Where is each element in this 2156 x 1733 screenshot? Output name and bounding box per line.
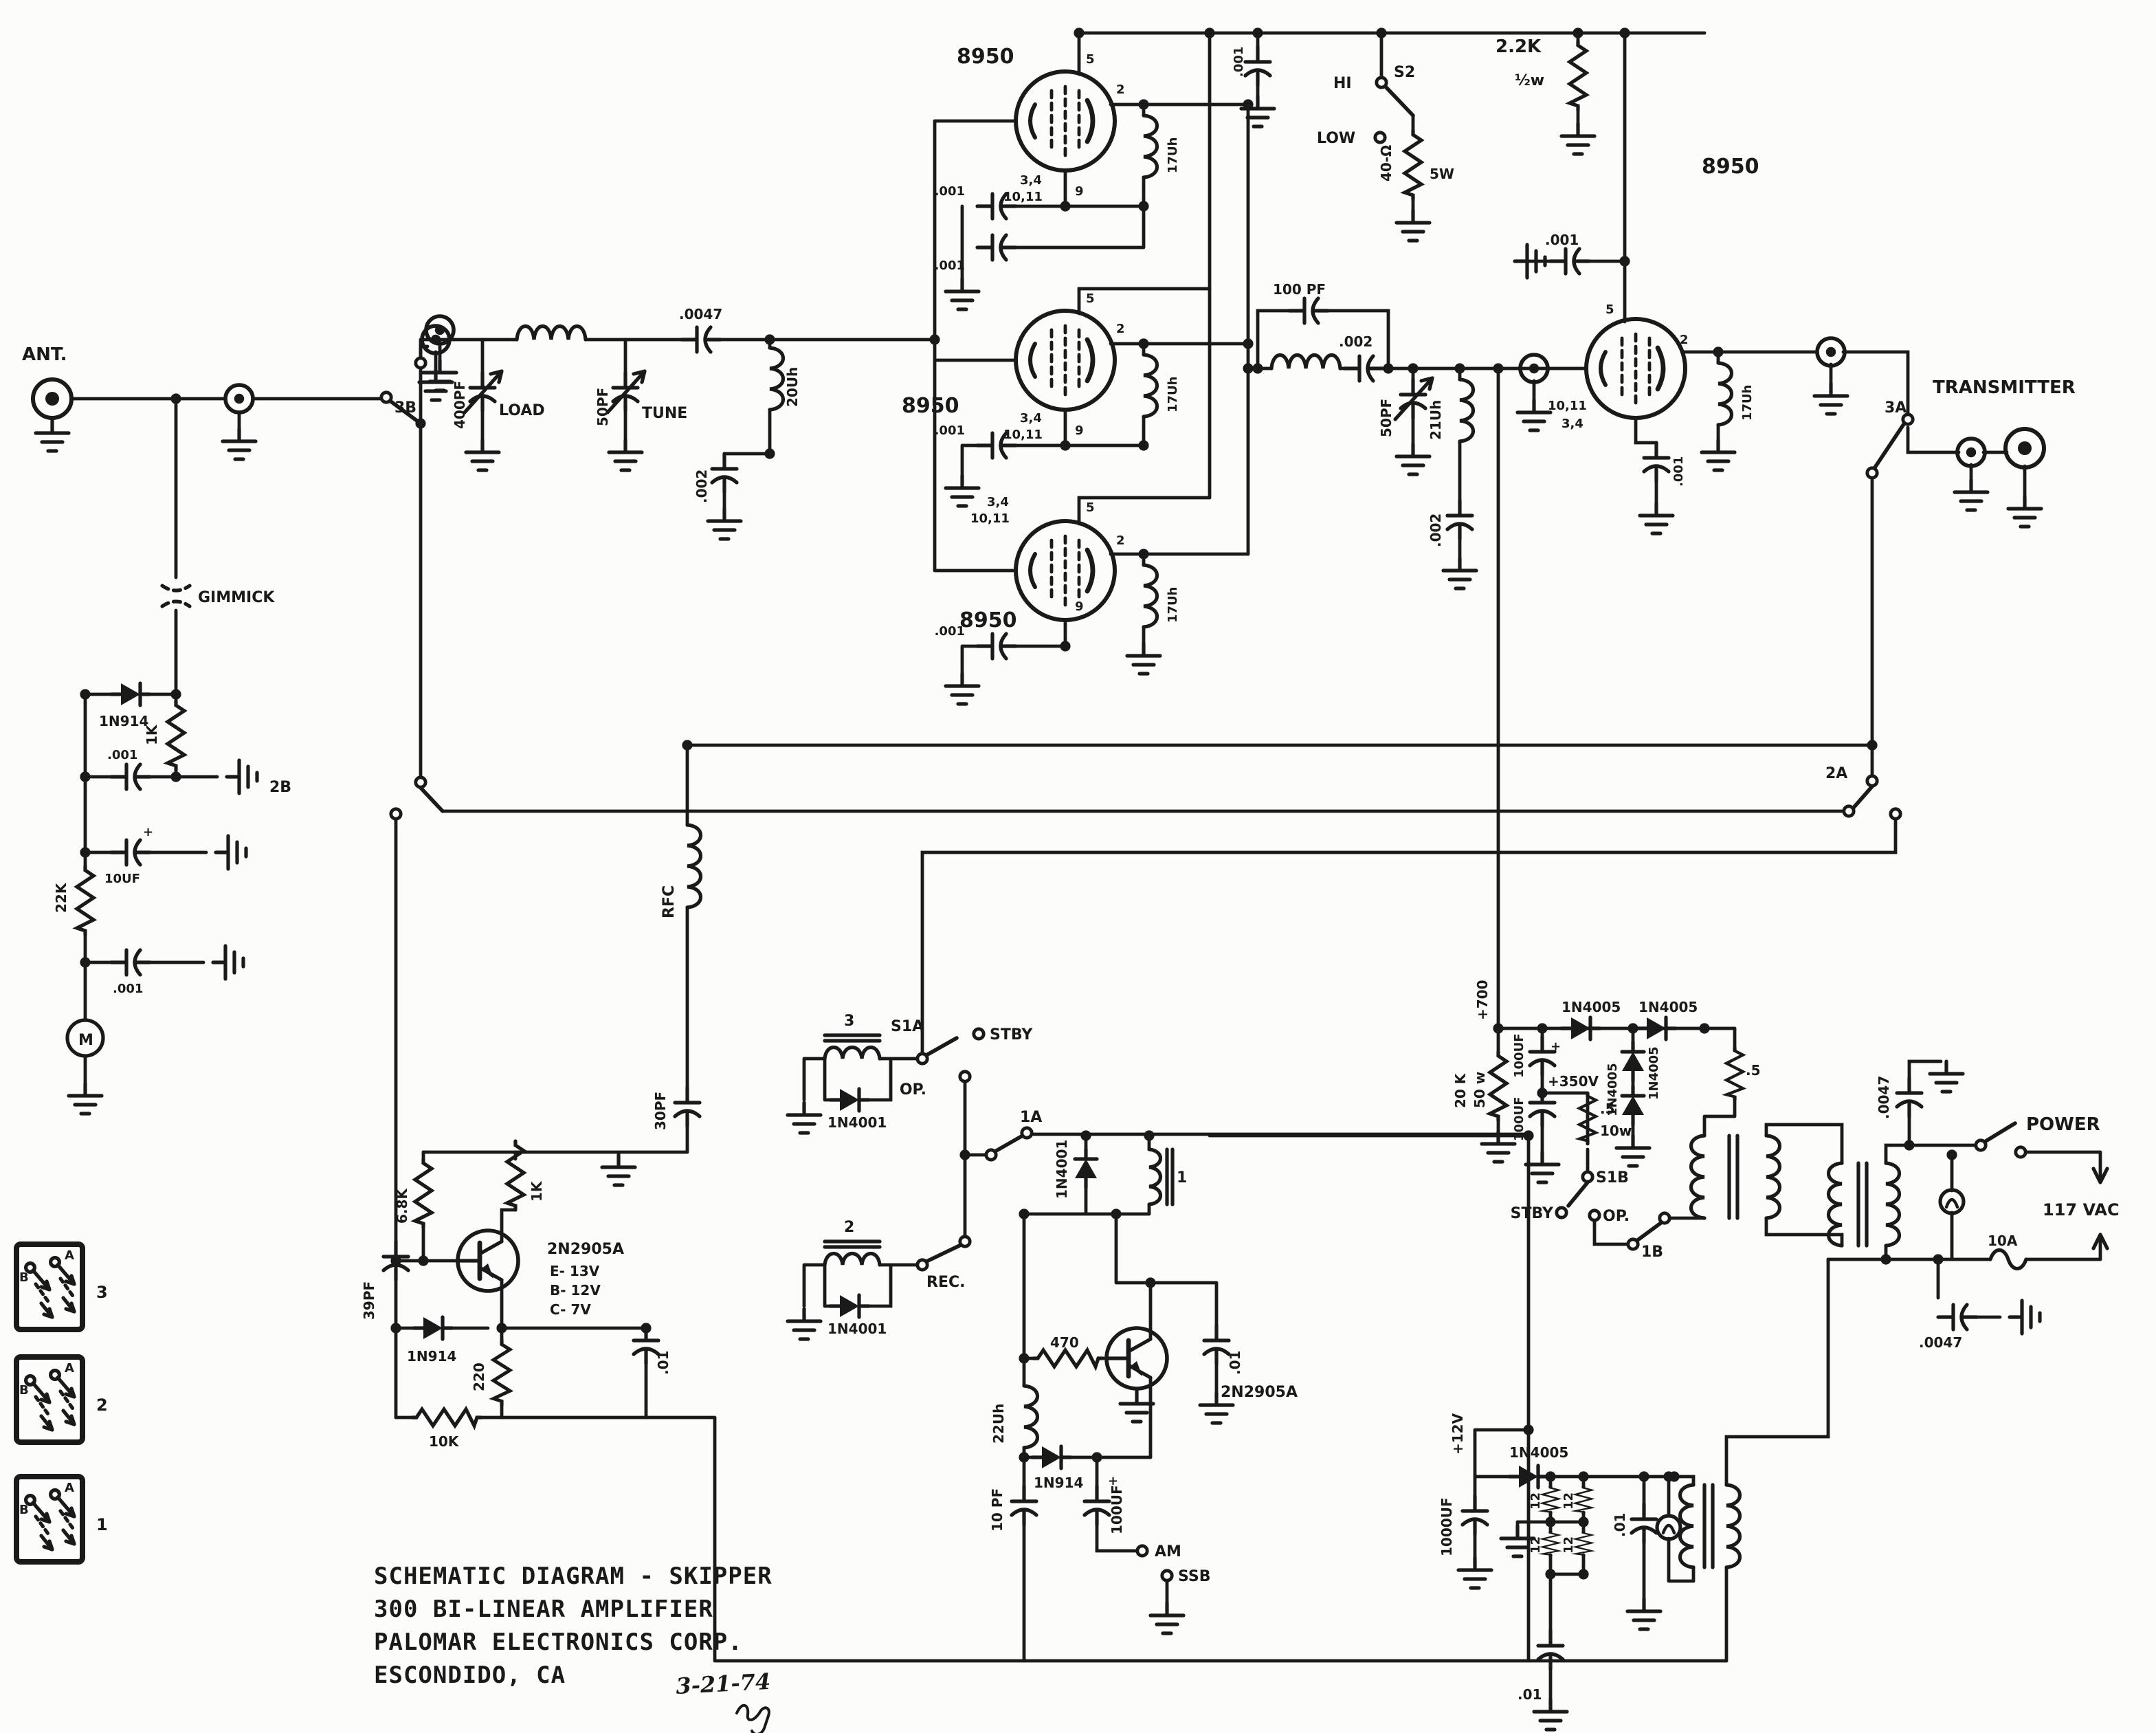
- ground: [1397, 210, 1430, 241]
- tube-8950-2: [1016, 311, 1115, 410]
- ground: [69, 1083, 102, 1114]
- label-1n4001-2: 1N4001: [827, 1321, 887, 1337]
- pins1011-3: 10,11: [970, 511, 1010, 526]
- label-1n4005-1: 1N4005: [1562, 999, 1621, 1015]
- label-0047-tank: .0047: [679, 306, 722, 322]
- label-400pf: 400PF: [452, 381, 468, 429]
- label-3b: 3B: [394, 399, 416, 417]
- label-17uh-2: 17Uh: [1166, 377, 1180, 412]
- label-001-t1b: .001: [935, 258, 965, 273]
- label-1n914-3: 1N914: [1034, 1475, 1083, 1491]
- label-002-tank: .002: [693, 470, 710, 503]
- label-1n4001-1: 1N4001: [1054, 1140, 1070, 1199]
- feedthru-jack: [225, 385, 253, 412]
- title-line3: PALOMAR ELECTRONICS CORP.: [374, 1629, 743, 1656]
- label-2-2k: 2.2K: [1496, 36, 1542, 57]
- choke-17uh-1: [1144, 115, 1157, 177]
- diode-1n4005-4: [1622, 1086, 1644, 1125]
- pin2-3: 2: [1116, 533, 1125, 548]
- label-470: 470: [1050, 1334, 1079, 1351]
- title-line4: ESCONDIDO, CA: [374, 1662, 566, 1689]
- labels: ANT. 3B GIMMICK 1N914 1K .001 + 10UF 22K…: [19, 36, 2120, 1703]
- label-1k-q1: 1K: [529, 1180, 545, 1202]
- relay-coil-1: [1149, 1149, 1173, 1204]
- cap-001: [977, 235, 1016, 260]
- diode-1n4001-3: [830, 1089, 869, 1111]
- cap-002: [1344, 356, 1383, 381]
- cap-0047: [682, 327, 720, 352]
- choke-21uh: [1460, 379, 1474, 441]
- label-p12: +12V: [1449, 1413, 1466, 1455]
- pins1011-2: 10,11: [1003, 428, 1043, 442]
- transmitter-jack: [2005, 429, 2044, 467]
- label-power: POWER: [2026, 1114, 2100, 1135]
- transformer-lv: [1680, 1485, 1740, 1567]
- label-relay3: 3: [844, 1013, 854, 1030]
- ground: [1526, 1152, 1559, 1182]
- ground: [223, 429, 256, 459]
- pins1011-4: 10,11: [1548, 399, 1587, 413]
- label-gimmick: GIMMICK: [198, 589, 275, 606]
- cap-002: [1447, 500, 1472, 539]
- ground: [1534, 1699, 1567, 1730]
- ground: [1458, 1558, 1491, 1588]
- label-50w: 50 w: [1471, 1072, 1488, 1108]
- ground: [1397, 444, 1430, 474]
- switch-power-lever: [1983, 1123, 2015, 1143]
- ground: [1127, 643, 1160, 674]
- label-ant: ANT.: [22, 344, 67, 365]
- pilot-lamp-1: [1940, 1190, 1964, 1213]
- ground: [1814, 384, 1847, 414]
- label-op-2: OP.: [1603, 1208, 1630, 1225]
- label-001-b: .001: [113, 982, 143, 996]
- label-01-q1: .01: [655, 1351, 671, 1375]
- label-meter: M: [78, 1032, 93, 1049]
- ground: [708, 509, 741, 539]
- switch-2a-lever: [1853, 786, 1872, 808]
- label-stby-1: STBY: [990, 1026, 1033, 1044]
- label-100uf-q2: 100UF: [1109, 1485, 1125, 1534]
- label-8950-3: 8950: [959, 608, 1017, 632]
- label-01-lv1: .01: [1518, 1686, 1542, 1703]
- label-6-8k: 6.8K: [394, 1188, 410, 1224]
- pin2-1: 2: [1116, 82, 1125, 97]
- cap-0047-bottom: [1938, 1305, 1977, 1329]
- cap-100uf-q2: [1085, 1486, 1109, 1525]
- label-40ohm: 40-Ω: [1378, 145, 1394, 181]
- choke-17uh-3: [1144, 565, 1157, 627]
- ground: [1930, 1061, 1963, 1092]
- antenna-jack: [33, 379, 71, 418]
- switch-s2-lever: [1384, 85, 1413, 115]
- choke-17uh-4: [1718, 363, 1732, 425]
- leg3-a: A: [65, 1248, 74, 1263]
- schematic-scan: ANT. 3B GIMMICK 1N914 1K .001 + 10UF 22K…: [0, 0, 2156, 1733]
- label-c7: C- 7V: [550, 1301, 591, 1318]
- switch-1a-lever: [994, 1136, 1023, 1152]
- label-point5-1: .5: [1600, 1101, 1615, 1117]
- resistor-40ohm: [1405, 131, 1421, 199]
- transmitter-feedthru-jack: [1957, 439, 1985, 466]
- label-hi: HI: [1333, 75, 1352, 92]
- transistor-2n2905a-2: [1107, 1328, 1167, 1389]
- label-1k-1: 1K: [144, 724, 160, 745]
- resistor-12-1: [1542, 1486, 1559, 1514]
- label-001-bus: .001: [1232, 47, 1246, 77]
- ground: [1955, 480, 1988, 510]
- leg1-a: A: [65, 1481, 74, 1495]
- ground: [946, 279, 979, 309]
- label-10pf: 10 PF: [989, 1488, 1005, 1532]
- label-002-out: .002: [1339, 333, 1372, 350]
- label-q2: 2N2905A: [1221, 1384, 1298, 1401]
- cap-0047-top: [1897, 1078, 1922, 1116]
- label-point5-2: .5: [1746, 1062, 1761, 1079]
- label-17uh-4: 17Uh: [1740, 385, 1755, 421]
- label-100uf-1: 100UF: [1512, 1034, 1526, 1079]
- cap-01-lv2: [1632, 1504, 1656, 1543]
- cap-30pf: [675, 1088, 700, 1126]
- label-1n4001-3: 1N4001: [827, 1114, 887, 1131]
- ground: [788, 1309, 821, 1339]
- label-1a: 1A: [1020, 1109, 1042, 1126]
- ground: [1518, 400, 1551, 430]
- leg2-b: B: [19, 1383, 29, 1398]
- pin5-2: 5: [1086, 291, 1095, 306]
- label-1n914-1: 1N914: [99, 713, 148, 729]
- cap-01-q2: [1204, 1325, 1229, 1364]
- label-001-rt: .001: [1545, 232, 1579, 248]
- label-10k: 10K: [429, 1433, 460, 1450]
- cap-001: [111, 950, 150, 975]
- cap-100pf: [1289, 298, 1328, 323]
- label-8950-1: 8950: [957, 45, 1014, 69]
- diode-1n914: [111, 683, 150, 705]
- diode-1n4005-3: [1622, 1042, 1644, 1081]
- label-1n4005-5: 1N4005: [1509, 1444, 1568, 1461]
- label-rec: REC.: [926, 1274, 965, 1291]
- label-relay1: 1: [1177, 1169, 1187, 1186]
- tube-8950-1: [1016, 71, 1115, 170]
- label-12-4: 12: [1562, 1536, 1576, 1554]
- cap-001: [111, 764, 150, 789]
- relay-coil-3: [825, 1035, 880, 1059]
- cap-1000uf: [1463, 1496, 1487, 1534]
- ground: [1562, 124, 1594, 154]
- pin5-3: 5: [1086, 500, 1095, 515]
- ground: [466, 440, 499, 470]
- label-002-21uh: .002: [1427, 514, 1444, 547]
- ground: [788, 1103, 821, 1133]
- label-tune: TUNE: [642, 405, 687, 422]
- ground: [2010, 1301, 2040, 1334]
- output-coil: [1271, 355, 1340, 369]
- label-8950-4: 8950: [1702, 155, 1759, 179]
- leg1-b: B: [19, 1503, 29, 1517]
- label-001-a: .001: [107, 748, 137, 762]
- ground: [602, 1155, 635, 1185]
- cap-001: [1551, 249, 1589, 274]
- pin9-1: 9: [1075, 184, 1084, 199]
- pins34-1: 3,4: [1020, 173, 1042, 188]
- label-1n4005-4: 1N4005: [1647, 1046, 1661, 1100]
- gimmick-capacitor: [162, 586, 190, 606]
- label-q1: 2N2905A: [547, 1241, 624, 1258]
- label-10w: 10w: [1600, 1123, 1632, 1139]
- transistor-2n2905a-1: [458, 1230, 518, 1291]
- label-001-t1a: .001: [935, 184, 965, 199]
- label-0047-b: .0047: [1919, 1334, 1962, 1351]
- pin2-4: 2: [1680, 333, 1689, 347]
- choke-22uh: [1024, 1386, 1038, 1448]
- pins34-4: 3,4: [1562, 417, 1583, 431]
- ground: [946, 476, 979, 506]
- pilot-lamp-2: [1657, 1516, 1680, 1539]
- title-date: 3-21-74: [675, 1668, 771, 1699]
- label-3a: 3A: [1885, 399, 1907, 417]
- ground: [2008, 496, 2041, 527]
- title-line2: 300 BI-LINEAR AMPLIFIER: [374, 1596, 713, 1623]
- resistor-12-3: [1542, 1532, 1559, 1556]
- choke-20uh: [770, 348, 784, 410]
- label-rfc: RFC: [660, 885, 678, 918]
- schematic-svg: ANT. 3B GIMMICK 1N914 1K .001 + 10UF 22K…: [0, 0, 2156, 1733]
- ground: [1151, 1603, 1183, 1633]
- ground: [609, 440, 642, 470]
- junction-dots: [80, 27, 1957, 1579]
- tank-coil: [517, 327, 586, 340]
- resistor-point5: [1726, 1048, 1743, 1100]
- label-20uh: 20Uh: [784, 367, 801, 407]
- label-12-3: 12: [1529, 1536, 1543, 1554]
- label-1b: 1B: [1641, 1244, 1663, 1261]
- ground: [946, 674, 979, 704]
- label-39pf: 39PF: [361, 1281, 377, 1320]
- label-10a: 10A: [1988, 1233, 2018, 1249]
- label-stby-2: STBY: [1511, 1205, 1554, 1222]
- label-5w: 5W: [1430, 166, 1454, 182]
- resistor-2-2k: [1570, 41, 1586, 110]
- label-17uh-3: 17Uh: [1166, 587, 1180, 623]
- diode-1n4001-2: [830, 1295, 869, 1317]
- ground: [1120, 1391, 1153, 1422]
- pin2-2: 2: [1116, 322, 1125, 336]
- ground: [1616, 1136, 1649, 1166]
- label-12-1: 12: [1529, 1492, 1543, 1510]
- label-relay2: 2: [844, 1219, 854, 1236]
- label-22k: 22K: [53, 882, 69, 913]
- ground: [216, 836, 246, 869]
- ground: [1702, 440, 1735, 470]
- resistor-1k: [168, 701, 184, 770]
- label-8950-2: 8950: [902, 394, 959, 418]
- ground: [227, 760, 257, 793]
- pins34-2: 3,4: [1020, 411, 1042, 426]
- tube-8950-3: [1016, 521, 1115, 620]
- pin9-3: 9: [1075, 599, 1084, 614]
- label-01-lv2: .01: [1612, 1513, 1628, 1537]
- switch-3a-lever: [1875, 422, 1905, 467]
- fuse-10a: [1990, 1250, 2026, 1269]
- resistor-12-2: [1575, 1486, 1592, 1514]
- resistor-470: [1034, 1350, 1102, 1367]
- pins1011-1: 10,11: [1003, 190, 1043, 204]
- diode-1n4001-1: [1075, 1149, 1097, 1188]
- label-op-1: OP.: [900, 1081, 926, 1099]
- label-100uf-2: 100UF: [1512, 1097, 1526, 1142]
- label-2b: 2B: [269, 779, 291, 796]
- pin9-2: 9: [1075, 423, 1084, 438]
- pin5-4: 5: [1605, 302, 1614, 317]
- label-ssb: SSB: [1178, 1568, 1210, 1585]
- label-1n914-2: 1N914: [407, 1348, 456, 1365]
- label-am: AM: [1155, 1543, 1181, 1560]
- label-001-t4: .001: [1671, 456, 1686, 487]
- label-s1b: S1B: [1596, 1169, 1629, 1186]
- cap-10pf: [1012, 1486, 1036, 1525]
- label-30pf: 30PF: [652, 1092, 669, 1130]
- ground: [213, 946, 243, 979]
- label-s2: S2: [1394, 64, 1415, 81]
- cap-01-lv1: [1538, 1631, 1563, 1669]
- ground: [36, 421, 69, 451]
- tube-8950-4: [1586, 319, 1685, 418]
- switch-2b-lever: [421, 788, 443, 811]
- leg2-num: 2: [96, 1395, 108, 1415]
- switch-1b-lever: [1636, 1222, 1662, 1241]
- relay-coil-2: [825, 1241, 880, 1265]
- cap-001: [1245, 47, 1270, 85]
- label-01-q2: .01: [1227, 1351, 1243, 1375]
- label-21uh: 21Uh: [1427, 400, 1444, 440]
- label-low: LOW: [1317, 130, 1355, 147]
- resistor-22k: [77, 866, 93, 935]
- diode-1n914-3: [1032, 1446, 1071, 1468]
- label-s1a: S1A: [891, 1018, 924, 1035]
- label-1000uf: 1000UF: [1438, 1497, 1455, 1556]
- label-100pf: 100 PF: [1273, 281, 1326, 298]
- label-20k: 20 K: [1452, 1072, 1469, 1108]
- label-001-t2: .001: [935, 423, 965, 438]
- plus-10uf: +: [143, 825, 153, 839]
- title-block: SCHEMATIC DIAGRAM - SKIPPER 300 BI-LINEA…: [374, 1563, 773, 1699]
- plus-100uf-1: +: [1551, 1039, 1561, 1054]
- pins34-3: 3,4: [987, 495, 1009, 509]
- ground: [1627, 1599, 1660, 1629]
- resistor-20k: [1490, 1052, 1507, 1121]
- title-line1: SCHEMATIC DIAGRAM - SKIPPER: [374, 1563, 773, 1590]
- label-0047-a: .0047: [1876, 1076, 1892, 1119]
- label-1n4005-2: 1N4005: [1638, 999, 1698, 1015]
- label-b12: B- 12V: [550, 1282, 601, 1299]
- switch-s1b-lever: [1568, 1182, 1588, 1206]
- label-12-2: 12: [1562, 1492, 1576, 1510]
- signature: [737, 1706, 769, 1733]
- label-22uh: 22Uh: [990, 1404, 1007, 1444]
- diode-1n4005-2: [1637, 1017, 1676, 1039]
- diode-1n914-2: [414, 1317, 452, 1339]
- diode-1n4005-1: [1562, 1017, 1600, 1039]
- resistor-10k: [412, 1409, 481, 1426]
- label-halfw: ½w: [1515, 72, 1544, 89]
- resistor-220: [493, 1340, 510, 1405]
- resistor-6-8k: [415, 1159, 432, 1228]
- switch-s1a-lever: [925, 1038, 957, 1056]
- cap-002: [712, 454, 737, 492]
- cap-10uf: [111, 840, 150, 865]
- leg3-b: B: [19, 1270, 29, 1285]
- pin5-1: 5: [1086, 52, 1095, 67]
- label-p700: +700: [1474, 980, 1491, 1020]
- cap-001: [1644, 443, 1669, 481]
- label-2a: 2A: [1825, 765, 1847, 782]
- switch-rec-lever: [925, 1246, 959, 1262]
- label-001-t3: .001: [935, 624, 965, 639]
- leg1-num: 1: [96, 1515, 108, 1534]
- leg3-num: 3: [96, 1283, 108, 1302]
- ground: [1640, 503, 1673, 533]
- choke-17uh-2: [1144, 355, 1157, 417]
- label-117vac: 117 VAC: [2043, 1200, 2120, 1219]
- label-50pf-out: 50PF: [1378, 399, 1394, 437]
- label-transmitter: TRANSMITTER: [1933, 377, 2076, 398]
- ground: [1443, 558, 1476, 588]
- transformer-hv: [1691, 1136, 1780, 1218]
- cap-001: [977, 634, 1016, 659]
- rfc-choke: [687, 825, 701, 907]
- label-load: LOAD: [499, 402, 545, 419]
- resistor-12-4: [1575, 1532, 1592, 1556]
- leg2-a: A: [65, 1361, 74, 1376]
- label-e13: E- 13V: [550, 1263, 600, 1279]
- label-10uf: 10UF: [104, 872, 140, 886]
- coax-jack: [1817, 338, 1845, 366]
- label-17uh-1: 17Uh: [1166, 137, 1180, 173]
- switch-levers: [389, 85, 2015, 1262]
- wires: [71, 33, 2100, 1699]
- label-220: 220: [471, 1362, 487, 1391]
- label-p350: +350V: [1548, 1073, 1599, 1090]
- label-50pf-tune: 50PF: [594, 388, 611, 426]
